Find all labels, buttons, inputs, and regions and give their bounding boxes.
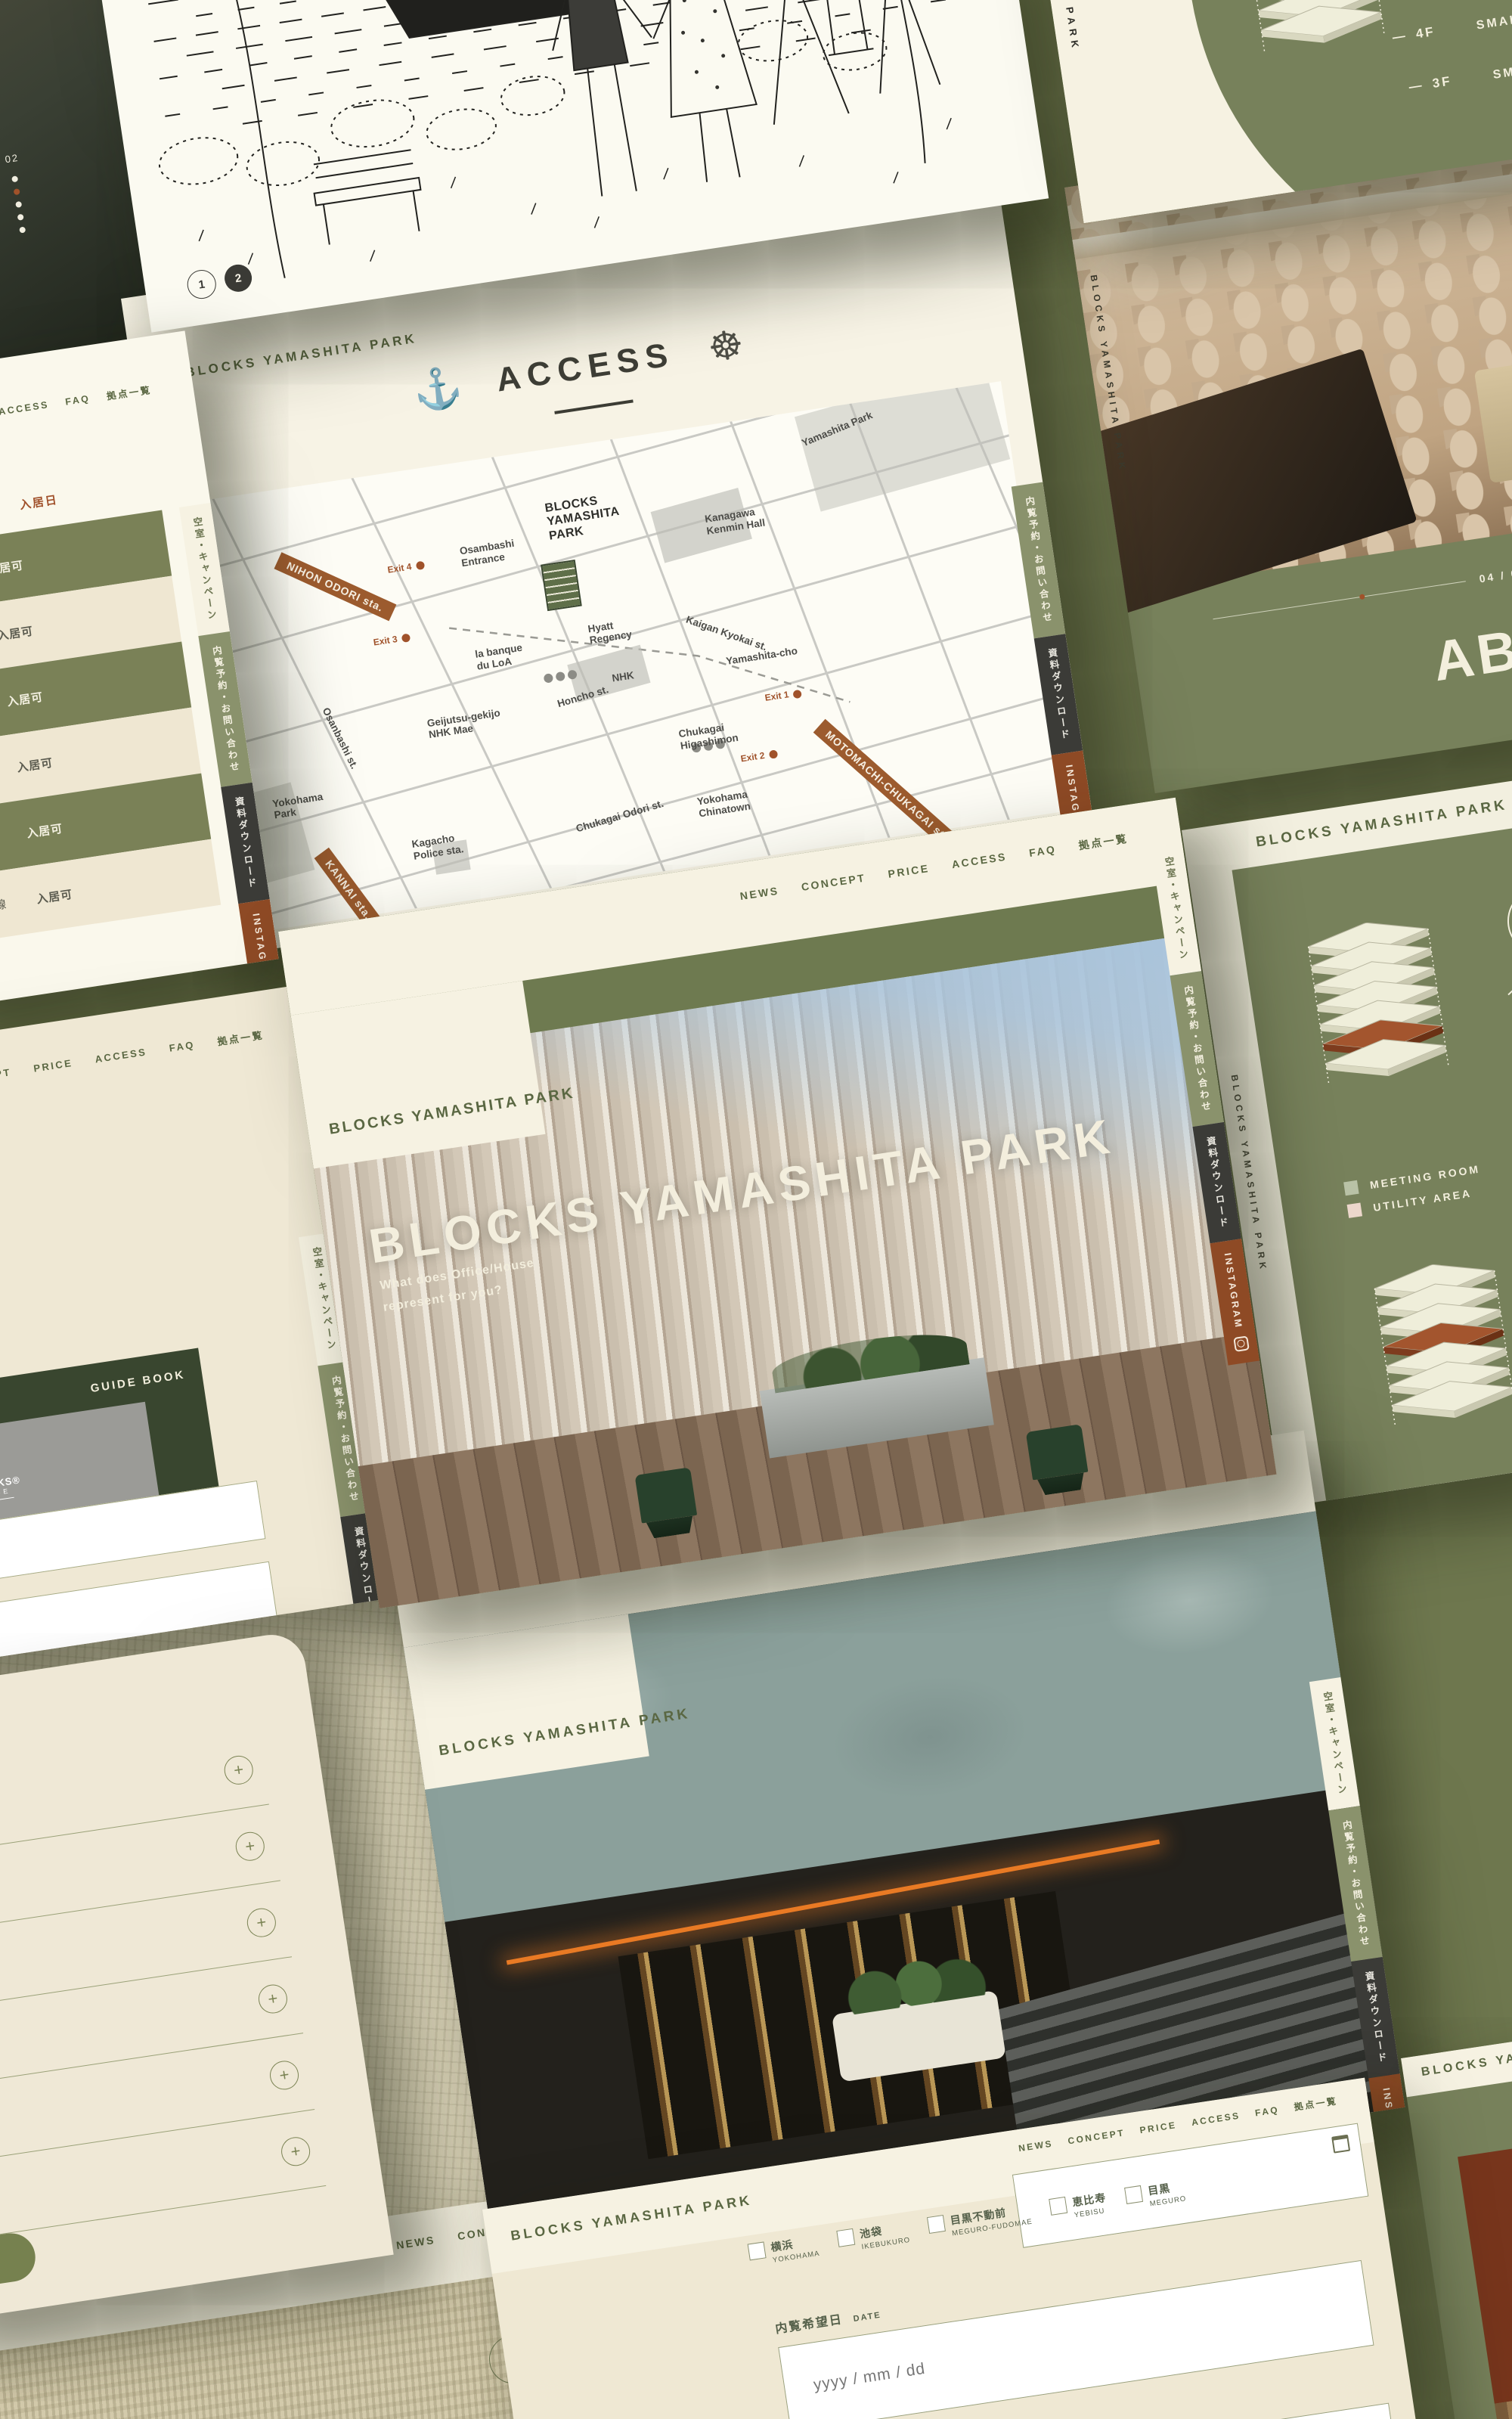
page-dot-2[interactable]: 2	[223, 262, 254, 293]
main-nav: NEWSCONCEPTPRICEACCESSFAQ拠点一覧	[0, 382, 153, 446]
floor-guide-panel: 1F MEETING ROOMUTILITY AREA MEETING ROOM…	[1232, 776, 1512, 1500]
nav-item-concept[interactable]: CONCEPT	[0, 1066, 12, 1087]
nav-item-locations[interactable]: 拠点一覧	[106, 382, 153, 403]
section-number-block: 05	[1458, 2109, 1512, 2404]
checkbox[interactable]	[748, 2241, 767, 2260]
checkbox[interactable]	[1124, 2185, 1143, 2204]
title-underline	[554, 399, 633, 414]
guide-book-label: GUIDE BOOK	[90, 1369, 187, 1396]
slide-dot[interactable]	[19, 226, 26, 233]
terrace-chair	[634, 1467, 697, 1523]
date-input[interactable]	[778, 2260, 1374, 2419]
plus-icon: +	[234, 1830, 266, 1862]
cover-brand: BLOCKS®	[0, 1454, 154, 1493]
nav-item-faq[interactable]: FAQ	[1254, 2104, 1280, 2118]
progress-line	[1213, 581, 1466, 619]
main-nav: NEWSCONCEPTPRICEACCESSFAQ拠点一覧	[0, 1027, 265, 1096]
anchor-icon: ⚓	[411, 363, 466, 416]
isometric-building-2f	[1362, 1254, 1512, 1449]
plus-icon: +	[222, 1754, 255, 1786]
carousel-progress: 04 / 06	[1212, 566, 1512, 625]
page-title: ACCESS	[494, 335, 677, 399]
nav-item-price[interactable]: PRICE	[33, 1057, 73, 1075]
about-section-card: BLOCKS YAMASHITA PARK 05	[1401, 1978, 1512, 2419]
calendar-icon	[1331, 2135, 1350, 2154]
hero-page-card: NEWSCONCEPTPRICEACCESSFAQ拠点一覧 BLOCKS YAM…	[278, 798, 1277, 1608]
price-table: 入居可入居可線入居可ト回線入居可ネット回線入居可ト・ネット回線入居可	[0, 510, 221, 954]
slide-dot[interactable]	[17, 214, 24, 221]
date-field-label: 内覧希望日 DATE	[774, 2303, 882, 2337]
table-silhouette	[1064, 349, 1417, 617]
map-building-icon	[541, 559, 582, 610]
nav-item-locations[interactable]: 拠点一覧	[216, 1027, 265, 1048]
slide-page-number: 02	[5, 152, 20, 166]
nav-item-access[interactable]: ACCESS	[0, 399, 50, 417]
nav-item-faq[interactable]: FAQ	[169, 1039, 196, 1054]
location-checkbox-ikebukuro[interactable]: 池袋IKEBUKURO	[836, 2219, 911, 2255]
instagram-icon	[1391, 2170, 1405, 2187]
slide-pagination: 02	[5, 152, 30, 234]
nav-item-access[interactable]: ACCESS	[94, 1046, 148, 1065]
slide-dot[interactable]	[11, 175, 18, 182]
checkbox[interactable]	[927, 2215, 946, 2234]
move-in-date-header: 入居日	[19, 492, 60, 513]
instagram-icon	[1233, 1335, 1250, 1352]
checkbox[interactable]	[1049, 2197, 1067, 2216]
slide-dot[interactable]	[14, 188, 20, 195]
site-logo[interactable]: BLOCKS YAMASHITA PARK	[184, 331, 418, 381]
legend-swatch	[1347, 1202, 1362, 1217]
plus-icon: +	[256, 1983, 289, 2015]
header-band	[1401, 1978, 1512, 2098]
terrace-chair	[1026, 1424, 1089, 1480]
legend-swatch	[1343, 1180, 1359, 1196]
view-all-button[interactable]: VIEW ALL	[0, 2230, 39, 2303]
slide-dot[interactable]	[15, 201, 22, 208]
nav-item-faq[interactable]: FAQ	[1028, 843, 1057, 859]
location-checkbox-meguro-fudomae[interactable]: 目黒不動前MEGURO-FUDOMAE	[927, 2201, 1033, 2241]
cover-sub: OFFICE	[0, 1487, 14, 1505]
ship-wheel-icon: ☸	[705, 321, 747, 371]
floor-badge-1f: 1F	[1503, 882, 1512, 960]
plus-icon: +	[280, 2135, 312, 2168]
plus-icon: +	[268, 2059, 300, 2092]
sofa	[1474, 330, 1512, 483]
plus-icon: +	[245, 1906, 277, 1939]
carousel-counter: 04 / 06	[1479, 566, 1512, 585]
page-dot-1[interactable]: 1	[185, 268, 218, 300]
checkbox[interactable]	[836, 2228, 855, 2247]
nav-item-faq[interactable]: FAQ	[64, 392, 91, 407]
legend: MEETING ROOMUTILITY AREA	[1343, 1162, 1484, 1218]
location-checkbox-yokohama[interactable]: 横浜YOKOHAMA	[747, 2233, 820, 2268]
faq-accordion: ++++++	[0, 1729, 326, 2253]
isometric-building-1f	[1295, 912, 1463, 1107]
